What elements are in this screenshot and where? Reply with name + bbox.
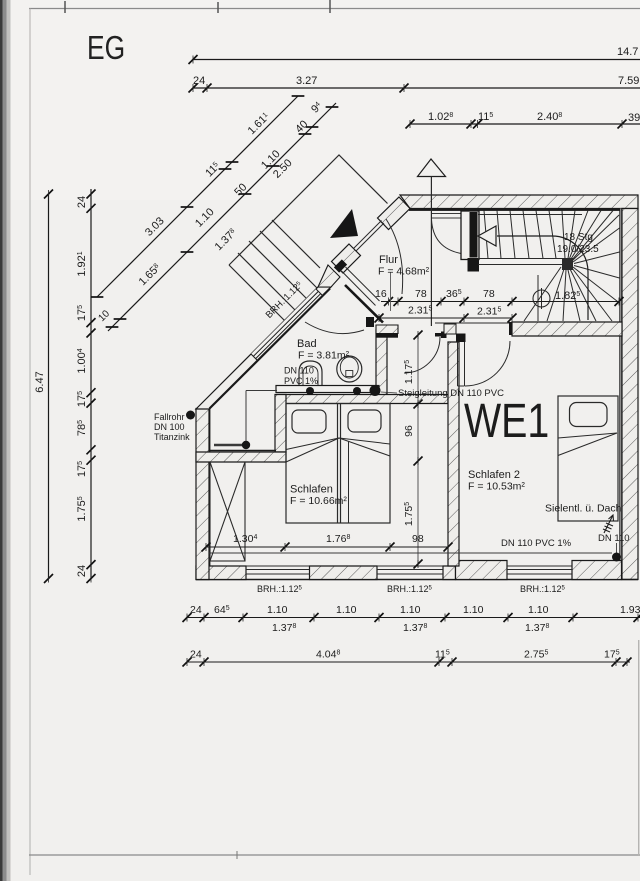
svg-text:F = 3.81m²: F = 3.81m² (298, 350, 350, 362)
svg-text:78: 78 (483, 288, 495, 300)
svg-text:98: 98 (412, 533, 424, 545)
svg-text:39: 39 (628, 112, 640, 124)
svg-text:18 Stg: 18 Stg (564, 232, 593, 243)
svg-text:14.7: 14.7 (617, 46, 638, 58)
svg-text:PVC 1%: PVC 1% (284, 376, 318, 386)
svg-text:Sielentl. ü. Dach: Sielentl. ü. Dach (545, 503, 622, 515)
svg-text:BRH.:1.125: BRH.:1.125 (257, 584, 303, 594)
svg-text:7.59: 7.59 (618, 75, 639, 87)
svg-text:Steigleitung DN 110 PVC: Steigleitung DN 110 PVC (398, 388, 504, 399)
svg-text:24: 24 (190, 649, 202, 661)
svg-text:24: 24 (190, 604, 202, 616)
svg-text:Schlafen 2: Schlafen 2 (468, 469, 520, 481)
svg-text:DN 100: DN 100 (154, 422, 185, 432)
svg-text:16: 16 (375, 288, 387, 300)
svg-text:1.10: 1.10 (267, 604, 288, 616)
svg-text:Fallrohr: Fallrohr (154, 412, 185, 422)
svg-text:1.93: 1.93 (620, 604, 640, 616)
svg-text:1.10: 1.10 (336, 604, 357, 616)
svg-text:1.10: 1.10 (528, 604, 549, 616)
svg-text:EG: EG (87, 30, 125, 66)
svg-text:WE1: WE1 (464, 394, 549, 448)
svg-text:78: 78 (415, 288, 427, 300)
svg-text:96: 96 (403, 425, 415, 437)
svg-text:6.47: 6.47 (34, 371, 46, 392)
svg-text:3.27: 3.27 (296, 75, 317, 87)
svg-text:F = 4.68m²: F = 4.68m² (378, 266, 430, 278)
svg-text:24: 24 (193, 75, 205, 87)
svg-text:BRH.:1.125: BRH.:1.125 (387, 584, 433, 594)
svg-text:Bad: Bad (297, 338, 317, 350)
svg-text:Schlafen: Schlafen (290, 484, 333, 496)
svg-text:DN 110: DN 110 (284, 366, 314, 376)
svg-text:BRH.:1.125: BRH.:1.125 (520, 584, 566, 594)
svg-text:24: 24 (76, 196, 88, 208)
svg-text:Flur: Flur (379, 254, 398, 266)
svg-text:DN 110 PVC 1%: DN 110 PVC 1% (501, 538, 572, 549)
svg-text:19.0/23.5: 19.0/23.5 (557, 244, 599, 255)
svg-text:Titanzink: Titanzink (154, 432, 190, 442)
svg-text:1.10: 1.10 (400, 604, 421, 616)
svg-text:1.10: 1.10 (463, 604, 484, 616)
svg-text:F = 10.66m²: F = 10.66m² (290, 495, 347, 507)
svg-text:F = 10.53m²: F = 10.53m² (468, 481, 525, 493)
svg-text:24: 24 (76, 565, 88, 577)
svg-text:DN 110: DN 110 (598, 533, 630, 544)
